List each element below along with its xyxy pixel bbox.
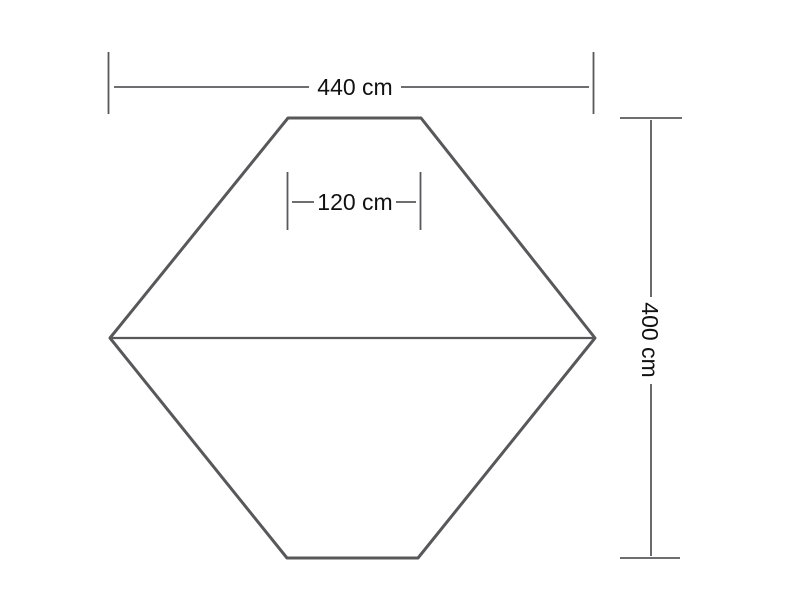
width-dimension: 440 cm xyxy=(109,52,594,114)
top-edge-dimension: 120 cm xyxy=(288,172,421,230)
width-dimension-label: 440 cm xyxy=(317,74,392,100)
top-edge-dimension-label: 120 cm xyxy=(317,189,392,215)
dimension-drawing: 440 cm 120 cm 400 cm xyxy=(0,0,800,600)
tarp-shape-group xyxy=(110,118,595,558)
height-dimension-label: 400 cm xyxy=(637,302,663,377)
diagram-canvas: 440 cm 120 cm 400 cm xyxy=(0,0,800,600)
height-dimension: 400 cm xyxy=(620,118,682,558)
